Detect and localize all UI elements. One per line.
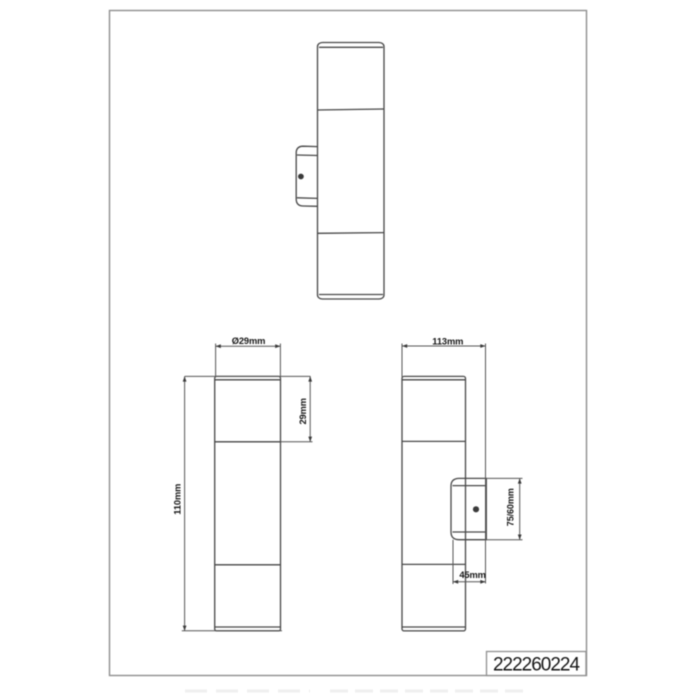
svg-text:45mm: 45mm [459,570,485,580]
svg-text:29mm: 29mm [298,398,308,424]
svg-text:110mm: 110mm [173,484,183,515]
svg-text:75/60mm: 75/60mm [506,488,516,526]
svg-text:Ø29mm: Ø29mm [232,336,266,346]
svg-text:113mm: 113mm [432,337,463,347]
svg-text:222260224: 222260224 [493,655,581,676]
